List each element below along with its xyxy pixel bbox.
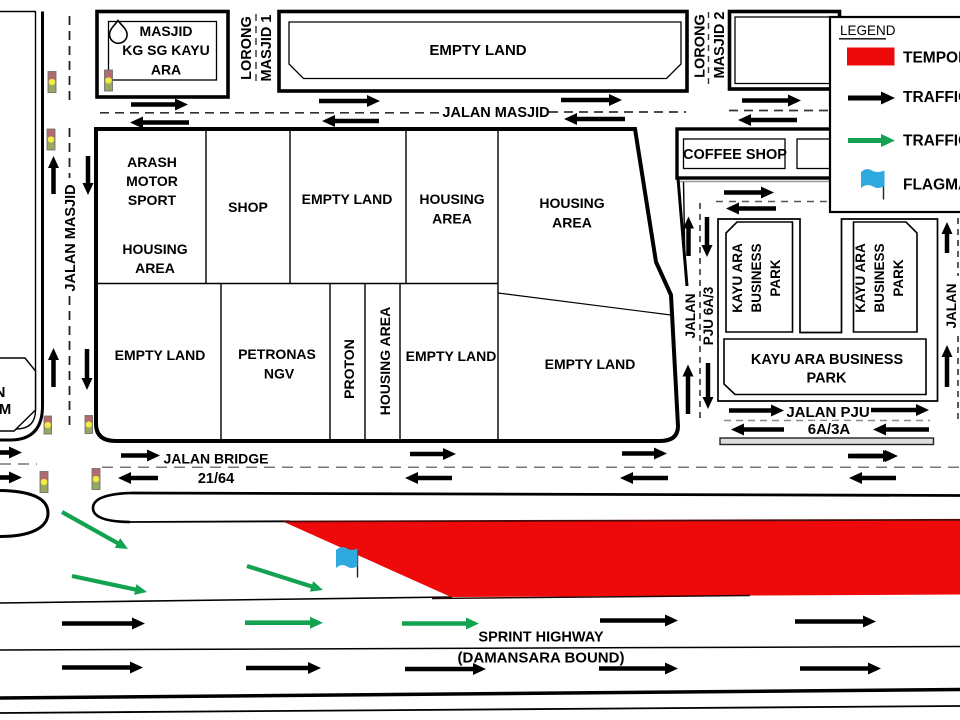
svg-text:SPORT: SPORT [128,192,177,208]
svg-text:MASJID: MASJID [140,23,193,39]
svg-text:PETRONAS: PETRONAS [238,346,316,362]
svg-text:KAYU ARA: KAYU ARA [853,243,868,313]
svg-text:TEMPORARY: TEMPORARY [903,50,960,67]
svg-text:ARASH: ARASH [127,154,177,170]
svg-text:HOUSING AREA: HOUSING AREA [377,307,393,415]
svg-text:JALAN MASJID: JALAN MASJID [63,184,79,291]
svg-text:LEGEND: LEGEND [840,23,896,38]
svg-text:ARA: ARA [151,62,181,78]
svg-text:PARK: PARK [768,259,783,297]
svg-text:M: M [0,401,11,418]
svg-text:KG SG KAYU: KG SG KAYU [122,42,209,58]
svg-text:JALAN BRIDGE: JALAN BRIDGE [163,451,268,467]
svg-text:6A/3A: 6A/3A [808,421,851,438]
svg-text:FLAGMAN: FLAGMAN [903,177,960,194]
svg-text:TRAFFIC FLOW: TRAFFIC FLOW [903,89,960,106]
svg-text:PROTON: PROTON [341,339,357,399]
svg-text:BUSINESS: BUSINESS [872,243,887,312]
svg-text:EMPTY LAND: EMPTY LAND [406,348,497,364]
svg-text:N: N [0,384,5,401]
svg-text:JALAN MASJID: JALAN MASJID [442,105,549,121]
svg-text:EMPTY LAND: EMPTY LAND [545,356,636,372]
svg-text:BUSINESS: BUSINESS [749,243,764,312]
svg-text:JALAN: JALAN [944,283,959,328]
svg-text:NGV: NGV [264,366,295,382]
svg-text:AREA: AREA [432,211,472,227]
svg-text:KAYU ARA: KAYU ARA [730,243,745,313]
svg-text:SHOP: SHOP [228,199,268,215]
svg-text:PJU 6A/3: PJU 6A/3 [701,286,716,345]
svg-text:21/64: 21/64 [198,471,234,487]
svg-text:PARK: PARK [891,259,906,297]
svg-text:COFFEE SHOP: COFFEE SHOP [683,147,787,163]
svg-text:AREA: AREA [135,260,175,276]
svg-text:JALAN PJU: JALAN PJU [786,404,869,421]
svg-text:EMPTY LAND: EMPTY LAND [115,347,206,363]
svg-text:EMPTY LAND: EMPTY LAND [302,191,393,207]
svg-text:MOTOR: MOTOR [126,173,178,189]
svg-text:MASJID 2: MASJID 2 [712,12,728,79]
svg-text:PARK: PARK [806,371,847,387]
svg-text:SPRINT HIGHWAY: SPRINT HIGHWAY [478,630,603,646]
svg-text:AREA: AREA [552,215,592,231]
svg-text:LORONG: LORONG [693,14,709,78]
svg-text:EMPTY LAND: EMPTY LAND [429,42,526,59]
svg-text:TRAFFIC FLOW: TRAFFIC FLOW [903,133,960,150]
svg-text:HOUSING: HOUSING [122,241,187,257]
svg-text:KAYU ARA BUSINESS: KAYU ARA BUSINESS [751,352,904,368]
svg-text:LORONG: LORONG [239,16,255,80]
svg-text:MASJID 1: MASJID 1 [259,15,275,82]
svg-text:(DAMANSARA BOUND): (DAMANSARA BOUND) [458,650,625,667]
svg-text:HOUSING: HOUSING [419,191,484,207]
svg-text:HOUSING: HOUSING [539,195,604,211]
svg-text:JALAN: JALAN [683,293,698,338]
